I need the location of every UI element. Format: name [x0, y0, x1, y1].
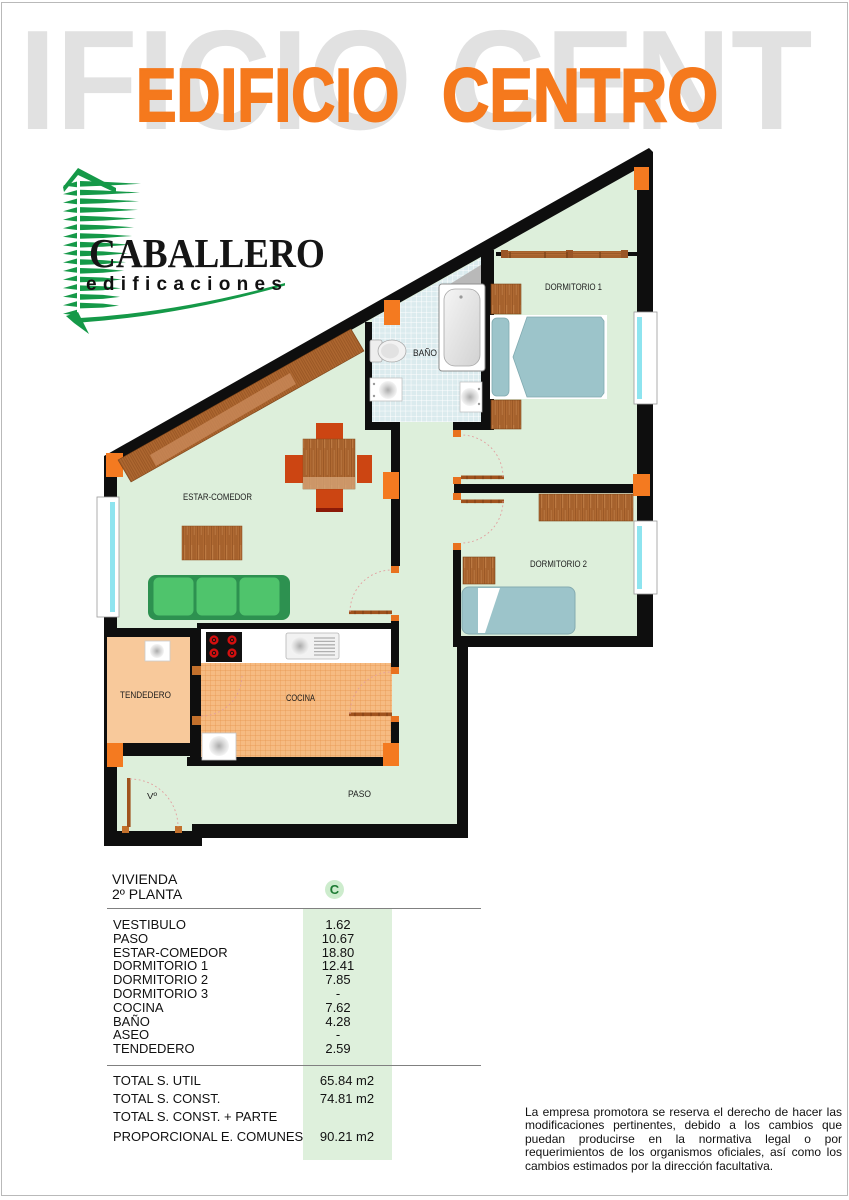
- svg-text:COCINA: COCINA: [286, 693, 316, 703]
- svg-text:DORMITORIO 2: DORMITORIO 2: [530, 559, 587, 569]
- svg-text:DORMITORIO 1: DORMITORIO 1: [545, 282, 602, 292]
- svg-text:ESTAR-COMEDOR: ESTAR-COMEDOR: [183, 492, 252, 502]
- svg-text:Vº: Vº: [147, 791, 157, 801]
- svg-text:PASO: PASO: [348, 789, 371, 799]
- svg-text:TENDEDERO: TENDEDERO: [120, 690, 171, 700]
- svg-text:BAÑO: BAÑO: [413, 348, 437, 358]
